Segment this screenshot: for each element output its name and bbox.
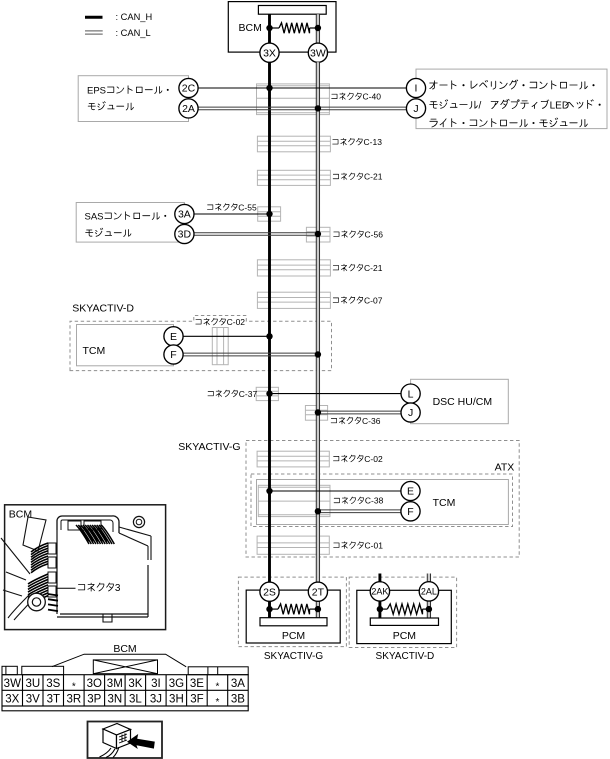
svg-text:3A: 3A — [178, 209, 191, 221]
svg-text:2T: 2T — [312, 586, 325, 598]
svg-text:3X: 3X — [5, 693, 19, 705]
svg-text:C-13: C-13 — [364, 137, 383, 147]
svg-text:/: / — [479, 101, 482, 112]
svg-text:3E: 3E — [190, 678, 204, 690]
svg-text:2AK: 2AK — [371, 587, 388, 597]
svg-text:*: * — [215, 697, 219, 708]
svg-text:SAS: SAS — [85, 212, 104, 223]
svg-text:J: J — [408, 407, 413, 419]
svg-text:: CAN_L: : CAN_L — [116, 28, 151, 38]
svg-text:3H: 3H — [169, 693, 184, 705]
svg-text:3D: 3D — [178, 229, 192, 241]
svg-text:3A: 3A — [231, 678, 245, 690]
svg-text:2AL: 2AL — [421, 587, 437, 597]
svg-text:3U: 3U — [25, 678, 40, 690]
svg-text:2A: 2A — [182, 103, 195, 115]
svg-text:3O: 3O — [87, 678, 102, 690]
svg-text:C-21: C-21 — [364, 263, 383, 273]
svg-text:SKYACTIV-D: SKYACTIV-D — [376, 651, 435, 662]
svg-text:3T: 3T — [47, 693, 60, 705]
svg-text:3P: 3P — [87, 693, 101, 705]
svg-text:3K: 3K — [128, 678, 142, 690]
svg-text:BCM: BCM — [113, 643, 136, 655]
svg-text:DSC HU/CM: DSC HU/CM — [433, 396, 493, 408]
svg-text:C-02: C-02 — [364, 454, 383, 464]
svg-text:3I: 3I — [151, 678, 161, 690]
svg-text:C-40: C-40 — [363, 92, 382, 102]
svg-text:3W: 3W — [310, 47, 326, 59]
svg-text:C-38: C-38 — [365, 496, 384, 506]
svg-text:3F: 3F — [190, 693, 203, 705]
svg-text:BCM: BCM — [239, 22, 262, 34]
svg-text:C-07: C-07 — [364, 295, 383, 305]
svg-text:: CAN_H: : CAN_H — [116, 12, 153, 22]
svg-text:F: F — [407, 506, 413, 518]
svg-text:E: E — [170, 331, 177, 343]
svg-text:3G: 3G — [169, 678, 184, 690]
svg-text:3N: 3N — [107, 693, 122, 705]
svg-text:3M: 3M — [107, 678, 123, 690]
svg-text:C-21: C-21 — [364, 172, 383, 182]
svg-text:I: I — [415, 83, 418, 95]
svg-text:3: 3 — [115, 583, 121, 594]
svg-text:ATX: ATX — [495, 462, 515, 474]
svg-text:L: L — [408, 388, 414, 400]
svg-text:SKYACTIV-D: SKYACTIV-D — [72, 303, 134, 315]
svg-text:2S: 2S — [263, 586, 276, 598]
svg-text:EPS: EPS — [87, 86, 106, 97]
svg-text:3L: 3L — [129, 693, 142, 705]
svg-text:SKYACTIV-G: SKYACTIV-G — [264, 651, 323, 662]
svg-text:3X: 3X — [263, 47, 276, 59]
svg-text:C-02: C-02 — [227, 317, 246, 327]
svg-text:C-55: C-55 — [238, 202, 257, 212]
svg-text:E: E — [407, 486, 414, 498]
svg-text:2C: 2C — [182, 83, 196, 95]
svg-text:C-36: C-36 — [362, 416, 381, 426]
svg-text:C-37: C-37 — [239, 389, 258, 399]
svg-text:*: * — [215, 681, 219, 692]
svg-text:PCM: PCM — [393, 630, 416, 642]
svg-text:TCM: TCM — [83, 345, 106, 357]
svg-text:3S: 3S — [46, 678, 60, 690]
svg-text:TCM: TCM — [433, 497, 456, 509]
svg-text:3W: 3W — [4, 678, 21, 690]
svg-text:3J: 3J — [150, 693, 162, 705]
svg-text:C-56: C-56 — [365, 229, 384, 239]
svg-text:3V: 3V — [26, 693, 40, 705]
svg-text:SKYACTIV-G: SKYACTIV-G — [178, 441, 240, 453]
svg-text:3R: 3R — [66, 693, 81, 705]
svg-text:*: * — [72, 681, 76, 692]
svg-text:ブLED: ブLED — [540, 99, 569, 112]
svg-text:C-01: C-01 — [365, 540, 384, 550]
svg-text:PCM: PCM — [282, 630, 305, 642]
svg-text:F: F — [170, 349, 176, 361]
svg-text:J: J — [413, 103, 418, 115]
svg-text:3B: 3B — [231, 693, 245, 705]
